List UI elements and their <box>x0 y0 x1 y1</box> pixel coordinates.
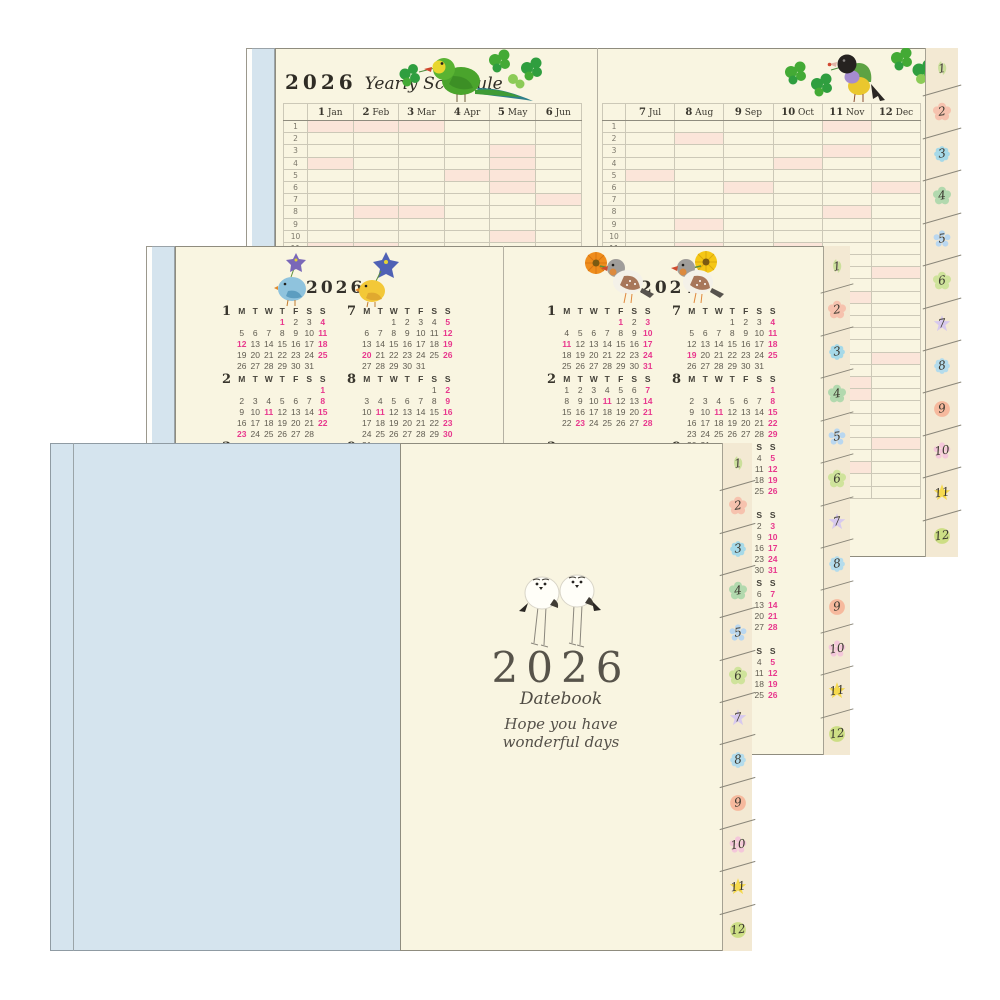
calendar-day: 17 <box>766 543 780 554</box>
schedule-cell <box>399 145 445 157</box>
calendar-day: 25 <box>428 350 442 361</box>
schedule-cell <box>399 121 445 133</box>
calendar-day: 19 <box>387 418 401 429</box>
weekday-header: S <box>428 306 442 317</box>
calendar-day: 12 <box>685 339 699 350</box>
calendar-day: 27 <box>360 361 374 372</box>
calendar-day: 24 <box>753 350 767 361</box>
calendar-day: 16 <box>628 339 642 350</box>
calendar-day: 14 <box>766 600 780 611</box>
tab-number: 6 <box>832 471 842 486</box>
tab-number: 7 <box>832 514 842 529</box>
month-tab-11[interactable]: 11 <box>723 866 752 908</box>
month-tab-7[interactable]: 7 <box>723 697 752 739</box>
schedule-cell <box>773 206 822 218</box>
month-tab-2[interactable]: 2 <box>824 288 850 330</box>
month-tab-4[interactable]: 4 <box>824 373 850 415</box>
cover-title-year: 2026 <box>400 643 722 692</box>
schedule-cell <box>490 194 536 206</box>
month-tab-7[interactable]: 7 <box>926 303 958 345</box>
calendar-day: 9 <box>685 407 699 418</box>
cover-message-line2: wonderful days <box>400 733 722 751</box>
calendar-day: 27 <box>628 418 642 429</box>
calendar-day: 21 <box>374 350 388 361</box>
weekday-header: T <box>601 374 615 385</box>
calendar-day: 3 <box>360 396 374 407</box>
calendar-day: 10 <box>641 328 655 339</box>
calendar-day: 26 <box>235 361 249 372</box>
month-tab-10[interactable]: 10 <box>926 430 958 472</box>
tab-number: 12 <box>729 921 746 937</box>
schedule-cell <box>490 157 536 169</box>
month-tab-3[interactable]: 3 <box>723 528 752 570</box>
schedule-cell <box>724 194 773 206</box>
month-tab-6[interactable]: 6 <box>723 655 752 697</box>
month-tab-7[interactable]: 7 <box>824 501 850 543</box>
calendar-day: 9 <box>739 328 753 339</box>
weekday-header: S <box>628 374 642 385</box>
calendar-day: 30 <box>739 361 753 372</box>
schedule-cell <box>773 133 822 145</box>
month-column-header: 6 Jun <box>535 104 581 121</box>
calendar-day: 19 <box>726 418 740 429</box>
calendar-day <box>401 385 415 396</box>
weekday-header: F <box>414 374 428 385</box>
schedule-cell <box>675 121 724 133</box>
tab-number: 10 <box>933 442 950 458</box>
tab-number: 8 <box>937 358 947 373</box>
calendar-day: 16 <box>739 339 753 350</box>
calendar-day: 7 <box>374 328 388 339</box>
calendar-day: 1 <box>428 385 442 396</box>
calendar-day: 21 <box>262 350 276 361</box>
calendar-day: 18 <box>766 339 780 350</box>
calendar-day: 10 <box>414 328 428 339</box>
weekday-header: S <box>753 306 767 317</box>
schedule-cell <box>822 194 871 206</box>
calendar-day: 17 <box>587 407 601 418</box>
calendar-day: 15 <box>614 339 628 350</box>
month-tab-12[interactable]: 12 <box>824 713 850 755</box>
day-row-number: 4 <box>603 157 626 169</box>
calendar-day: 6 <box>739 396 753 407</box>
calendar-day: 9 <box>441 396 455 407</box>
calendar-day <box>289 385 303 396</box>
schedule-cell <box>871 450 920 462</box>
weekday-header: T <box>249 306 263 317</box>
schedule-cell <box>724 181 773 193</box>
weekday-header: T <box>276 374 290 385</box>
calendar-day: 12 <box>387 407 401 418</box>
calendar-day: 19 <box>766 475 780 486</box>
schedule-cell <box>871 474 920 486</box>
month-tab-11[interactable]: 11 <box>824 670 850 712</box>
month-tab-12[interactable]: 12 <box>926 515 958 557</box>
schedule-cell <box>675 218 724 230</box>
calendar-day: 23 <box>289 350 303 361</box>
calendar-day: 8 <box>560 396 574 407</box>
calendar-day: 10 <box>766 532 780 543</box>
weekday-header: S <box>766 646 780 657</box>
tab-number: 1 <box>733 456 743 471</box>
weekday-header: T <box>699 306 713 317</box>
weekday-header: F <box>739 306 753 317</box>
schedule-cell <box>444 194 490 206</box>
month-number: 7 <box>672 304 681 319</box>
tab-number: 2 <box>733 498 743 513</box>
schedule-cell <box>871 255 920 267</box>
schedule-cell <box>871 218 920 230</box>
day-row-number: 2 <box>603 133 626 145</box>
calendar-day: 9 <box>289 328 303 339</box>
calendar-day: 2 <box>628 317 642 328</box>
weekday-header: T <box>574 306 588 317</box>
month-tab-5[interactable]: 5 <box>824 416 850 458</box>
calendar-day: 2 <box>235 396 249 407</box>
tab-number: 10 <box>729 837 746 853</box>
schedule-cell <box>626 169 675 181</box>
cover-spine-line <box>73 443 74 951</box>
schedule-cell <box>773 181 822 193</box>
schedule-cell <box>773 218 822 230</box>
month-tab-4[interactable]: 4 <box>723 570 752 612</box>
month-tab-2[interactable]: 2 <box>723 485 752 527</box>
calendar-day: 3 <box>766 521 780 532</box>
month-tab-1[interactable]: 1 <box>824 246 850 288</box>
schedule-cell <box>353 145 399 157</box>
calendar-day: 4 <box>560 328 574 339</box>
calendar-day: 14 <box>414 407 428 418</box>
calendar-day <box>753 701 767 712</box>
calendar-day: 9 <box>753 532 767 543</box>
calendar-day: 15 <box>766 407 780 418</box>
month-tab-strip: 123456789101112 <box>925 48 958 557</box>
calendar-day: 12 <box>441 328 455 339</box>
weekday-header: W <box>262 374 276 385</box>
calendar-day: 16 <box>685 418 699 429</box>
weekday-header: T <box>401 374 415 385</box>
calendar-day: 29 <box>387 361 401 372</box>
tab-number: 6 <box>733 668 743 683</box>
calendar-day <box>235 385 249 396</box>
calendar-day: 2 <box>685 396 699 407</box>
calendar-day <box>753 633 767 644</box>
schedule-cell <box>871 401 920 413</box>
schedule-cell <box>871 437 920 449</box>
calendar-day: 8 <box>726 328 740 339</box>
month-column-header: 3 Mar <box>399 104 445 121</box>
schedule-cell <box>871 291 920 303</box>
schedule-cell <box>822 169 871 181</box>
schedule-cell <box>871 328 920 340</box>
calendar-day: 5 <box>614 385 628 396</box>
month-tab-8[interactable]: 8 <box>723 739 752 781</box>
calendar-day: 13 <box>628 396 642 407</box>
calendar-day: 5 <box>766 453 780 464</box>
month-tab-1[interactable]: 1 <box>926 48 958 90</box>
tab-number: 11 <box>828 683 845 699</box>
tab-number: 4 <box>733 583 743 598</box>
calendar-day: 3 <box>249 396 263 407</box>
weekday-header: T <box>374 306 388 317</box>
calendar-day: 20 <box>587 350 601 361</box>
month-tab-11[interactable]: 11 <box>926 472 958 514</box>
calendar-day: 3 <box>641 317 655 328</box>
calendar-day: 15 <box>276 339 290 350</box>
schedule-cell <box>535 121 581 133</box>
calendar-day: 28 <box>374 361 388 372</box>
weekday-header: T <box>276 306 290 317</box>
calendar-day <box>387 385 401 396</box>
calendar-day: 30 <box>289 361 303 372</box>
month-tab-10[interactable]: 10 <box>723 824 752 866</box>
month-tab-strip: 123456789101112 <box>722 443 752 951</box>
calendar-day: 16 <box>574 407 588 418</box>
calendar-day: 25 <box>374 429 388 440</box>
schedule-cell <box>444 157 490 169</box>
calendar-day: 6 <box>360 328 374 339</box>
weekday-header: S <box>753 578 767 589</box>
calendar-day: 13 <box>289 407 303 418</box>
weekday-header: S <box>766 510 780 521</box>
schedule-cell <box>871 316 920 328</box>
calendar-day: 5 <box>387 396 401 407</box>
day-row-number: 6 <box>284 181 308 193</box>
calendar-day: 14 <box>753 407 767 418</box>
calendar-day: 1 <box>387 317 401 328</box>
calendar-day: 26 <box>387 429 401 440</box>
calendar-day: 28 <box>601 361 615 372</box>
month-tab-8[interactable]: 8 <box>926 345 958 387</box>
calendar-day: 10 <box>249 407 263 418</box>
month-column-header: 4 Apr <box>444 104 490 121</box>
calendar-day: 8 <box>766 396 780 407</box>
calendar-day: 12 <box>766 668 780 679</box>
mini-calendar-month-2: 2MTWTFSS12345678910111213141516171819202… <box>560 374 655 429</box>
calendar-day <box>739 385 753 396</box>
day-row-number: 4 <box>284 157 308 169</box>
schedule-cell <box>308 206 354 218</box>
weekday-header: M <box>685 306 699 317</box>
month-tab-5[interactable]: 5 <box>926 218 958 260</box>
month-tab-1[interactable]: 1 <box>723 443 752 485</box>
calendar-day: 17 <box>699 418 713 429</box>
calendar-day <box>699 385 713 396</box>
weekday-header: W <box>262 306 276 317</box>
calendar-day: 8 <box>614 328 628 339</box>
weekday-header: T <box>374 374 388 385</box>
calendar-day: 30 <box>401 361 415 372</box>
calendar-day <box>374 317 388 328</box>
weekday-header: M <box>235 306 249 317</box>
calendar-day: 8 <box>387 328 401 339</box>
calendar-day: 27 <box>699 361 713 372</box>
day-row-number: 6 <box>603 181 626 193</box>
tab-number: 9 <box>832 599 842 614</box>
schedule-cell <box>490 145 536 157</box>
day-row-number: 7 <box>284 194 308 206</box>
calendar-day: 8 <box>316 396 330 407</box>
weekday-header: T <box>726 306 740 317</box>
day-row-number: 3 <box>603 145 626 157</box>
schedule-cell <box>871 242 920 254</box>
month-column-header: 1 Jan <box>308 104 354 121</box>
calendar-day: 26 <box>685 361 699 372</box>
schedule-cell <box>535 218 581 230</box>
calendar-day: 4 <box>262 396 276 407</box>
tab-number: 6 <box>937 273 947 288</box>
schedule-cell <box>353 181 399 193</box>
bellflower-icon <box>373 252 399 278</box>
weekday-header: S <box>641 306 655 317</box>
calendar-day: 24 <box>766 554 780 565</box>
calendar-day: 29 <box>276 361 290 372</box>
calendar-day: 2 <box>574 385 588 396</box>
calendar-day: 28 <box>712 361 726 372</box>
calendar-day <box>766 361 780 372</box>
schedule-cell <box>535 194 581 206</box>
calendar-day: 11 <box>753 668 767 679</box>
month-tab-5[interactable]: 5 <box>723 612 752 654</box>
calendar-day <box>712 385 726 396</box>
month-tab-9[interactable]: 9 <box>926 387 958 429</box>
calendar-day: 19 <box>574 350 588 361</box>
month-tab-9[interactable]: 9 <box>723 782 752 824</box>
schedule-cell <box>308 194 354 206</box>
month-tab-8[interactable]: 8 <box>824 543 850 585</box>
schedule-cell <box>871 267 920 279</box>
datebook-product-image: 2026Yearly Schedule <box>0 0 1000 1000</box>
month-number: 7 <box>347 304 356 319</box>
weekday-header: S <box>316 306 330 317</box>
tab-number: 4 <box>937 188 947 203</box>
calendar-day: 17 <box>641 339 655 350</box>
weekday-header: S <box>428 374 442 385</box>
calendar-day: 23 <box>574 418 588 429</box>
calendar-day <box>235 317 249 328</box>
calendar-day: 15 <box>387 339 401 350</box>
month-tab-4[interactable]: 4 <box>926 175 958 217</box>
month-tab-3[interactable]: 3 <box>824 331 850 373</box>
month-tab-9[interactable]: 9 <box>824 585 850 627</box>
calendar-day: 22 <box>766 418 780 429</box>
calendar-day: 22 <box>726 350 740 361</box>
calendar-day <box>276 385 290 396</box>
calendar-day: 12 <box>574 339 588 350</box>
day-row-number: 2 <box>284 133 308 145</box>
calendar-day: 13 <box>360 339 374 350</box>
calendar-day: 15 <box>428 407 442 418</box>
month-tab-3[interactable]: 3 <box>926 133 958 175</box>
calendar-day <box>699 317 713 328</box>
mini-calendar-month-8: 8MTWTFSS12345678910111213141516171819202… <box>685 374 780 451</box>
calendar-day: 24 <box>414 350 428 361</box>
calendar-day: 1 <box>766 385 780 396</box>
calendar-day: 17 <box>414 339 428 350</box>
weekday-header: W <box>387 306 401 317</box>
calendar-day: 30 <box>441 429 455 440</box>
schedule-cell <box>675 194 724 206</box>
calendar-day: 24 <box>699 429 713 440</box>
calendar-day <box>428 361 442 372</box>
weekday-header: S <box>303 306 317 317</box>
calendar-day: 13 <box>249 339 263 350</box>
calendar-day <box>374 385 388 396</box>
tab-number: 8 <box>733 752 743 767</box>
weekday-header: W <box>712 374 726 385</box>
calendar-day <box>685 385 699 396</box>
schedule-cell <box>871 121 920 133</box>
schedule-cell <box>871 157 920 169</box>
schedule-cell <box>773 194 822 206</box>
schedule-cell <box>871 169 920 181</box>
schedule-cell <box>773 157 822 169</box>
schedule-cell <box>626 145 675 157</box>
schedule-cell <box>724 133 773 145</box>
calendar-day <box>766 633 780 644</box>
schedule-cell <box>490 230 536 242</box>
calendar-day: 7 <box>712 328 726 339</box>
calendar-day: 27 <box>739 429 753 440</box>
month-tab-2[interactable]: 2 <box>926 90 958 132</box>
calendar-day: 16 <box>289 339 303 350</box>
calendar-day: 13 <box>739 407 753 418</box>
weekday-header: F <box>289 306 303 317</box>
calendar-day: 2 <box>401 317 415 328</box>
calendar-day: 28 <box>262 361 276 372</box>
schedule-cell <box>308 121 354 133</box>
schedule-cell <box>675 145 724 157</box>
weekday-header: M <box>560 374 574 385</box>
calendar-day: 4 <box>766 317 780 328</box>
calendar-day: 18 <box>316 339 330 350</box>
weekday-header: S <box>753 374 767 385</box>
calendar-day: 27 <box>401 429 415 440</box>
calendar-day: 7 <box>766 589 780 600</box>
calendar-day: 3 <box>699 396 713 407</box>
calendar-day: 12 <box>235 339 249 350</box>
calendar-day: 31 <box>303 361 317 372</box>
calendar-day <box>587 317 601 328</box>
schedule-cell <box>308 145 354 157</box>
month-tab-10[interactable]: 10 <box>824 628 850 670</box>
schedule-cell <box>626 194 675 206</box>
month-tab-12[interactable]: 12 <box>723 909 752 951</box>
calendar-day: 4 <box>374 396 388 407</box>
calendar-day: 12 <box>614 396 628 407</box>
tab-number: 10 <box>828 640 845 656</box>
schedule-cell <box>308 133 354 145</box>
calendar-day: 5 <box>276 396 290 407</box>
calendar-day: 7 <box>414 396 428 407</box>
calendar-day: 25 <box>601 418 615 429</box>
calendar-day: 29 <box>766 429 780 440</box>
month-column-header: 12 Dec <box>871 104 920 121</box>
calendar-day: 22 <box>387 350 401 361</box>
gerbera-flower-icon <box>695 251 717 273</box>
calendar-day <box>766 701 780 712</box>
calendar-day: 11 <box>601 396 615 407</box>
month-column-header: 8 Aug <box>675 104 724 121</box>
month-tab-6[interactable]: 6 <box>926 260 958 302</box>
month-tab-6[interactable]: 6 <box>824 458 850 500</box>
calendar-day: 24 <box>303 350 317 361</box>
schedule-cell <box>399 133 445 145</box>
calendar-day: 25 <box>316 350 330 361</box>
gouldian-finch-illustration <box>779 48 934 106</box>
calendar-day: 18 <box>428 339 442 350</box>
calendar-day: 12 <box>766 464 780 475</box>
